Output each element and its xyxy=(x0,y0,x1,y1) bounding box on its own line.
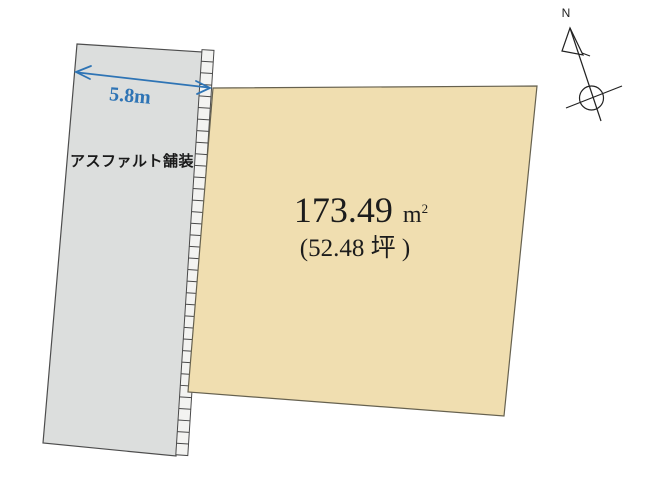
plot-tsubo-label: (52.48 坪 ) xyxy=(205,228,505,264)
plot-area-unit: m2 xyxy=(403,201,428,229)
road-surface-label: アスファルト舗装 xyxy=(64,150,200,171)
plot-area-unit-base: m xyxy=(403,202,422,228)
plot-area-label: 173.49 m2 xyxy=(211,189,511,231)
plot-area-value: 173.49 xyxy=(294,189,393,231)
compass-needle-line xyxy=(570,28,601,121)
compass-cross-line xyxy=(566,86,622,108)
north-arrow-triangle xyxy=(562,28,583,55)
north-label: N xyxy=(556,6,576,20)
land-plot-diagram: アスファルト舗装 5.8m 173.49 m2 (52.48 坪 ) N xyxy=(0,0,666,500)
compass-icon xyxy=(562,28,622,121)
plot-area-unit-exponent: 2 xyxy=(422,201,429,216)
